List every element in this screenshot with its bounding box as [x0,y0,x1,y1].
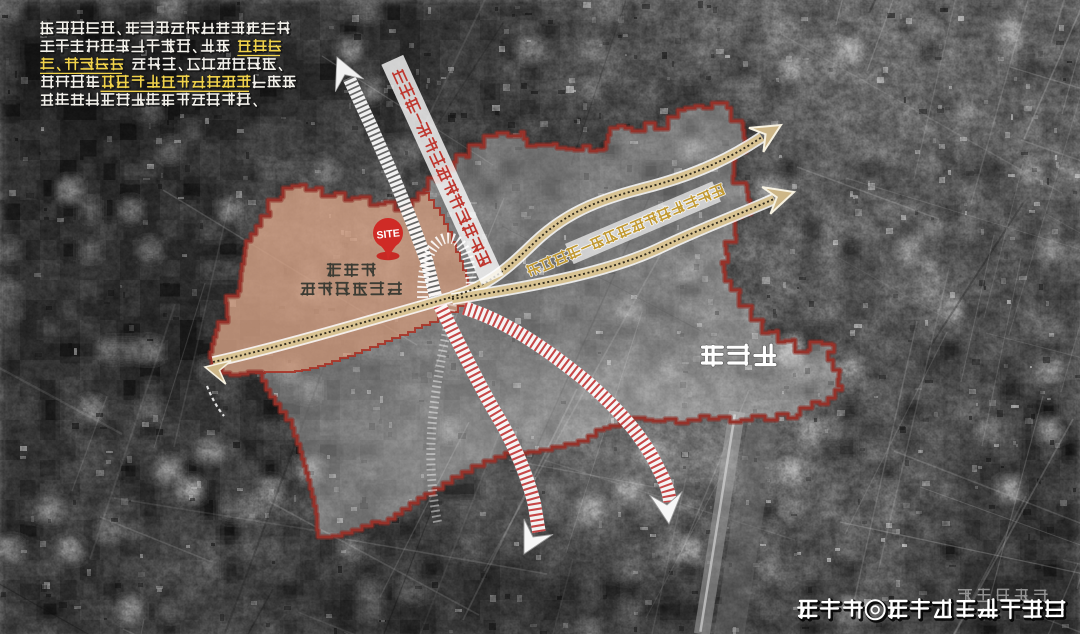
svg-text:SITE: SITE [376,227,400,241]
